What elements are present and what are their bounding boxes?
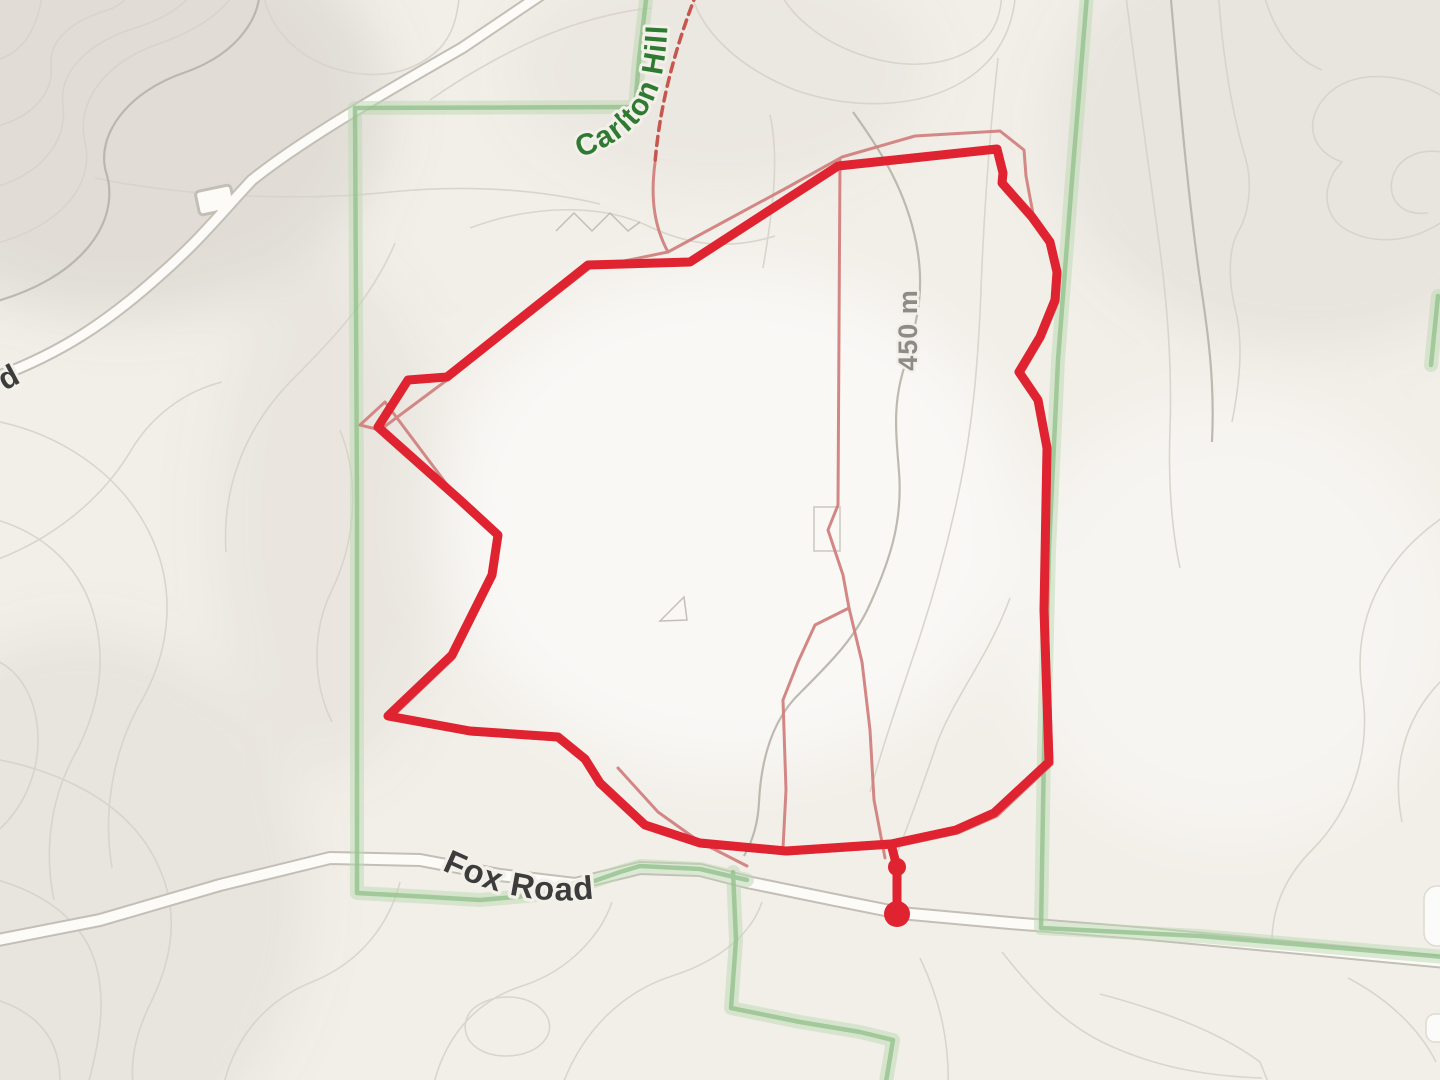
edge-pill-top xyxy=(1424,886,1440,946)
route-endpoint-dot[interactable] xyxy=(884,901,910,927)
edge-pill-bottom xyxy=(1426,1014,1440,1042)
route-waypoint-dot[interactable] xyxy=(888,858,906,876)
trail-map[interactable]: Carlton Hill Fox Road 450 m d xyxy=(0,0,1440,1080)
elevation-label: 450 m xyxy=(893,289,923,371)
